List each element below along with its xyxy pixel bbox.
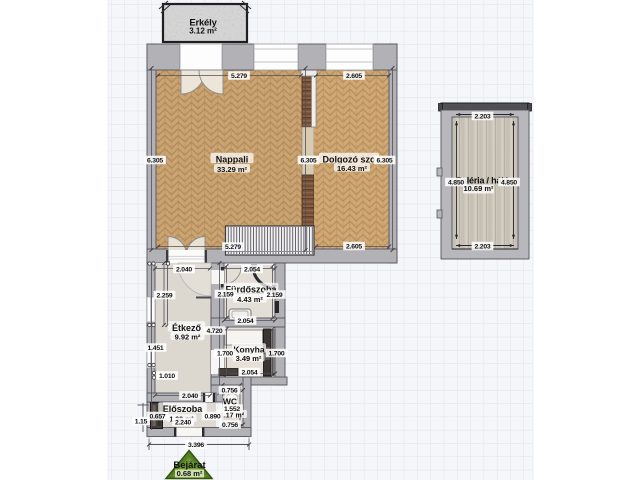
svg-text:Nappali: Nappali [216, 155, 249, 165]
svg-text:6.305: 6.305 [376, 157, 392, 164]
svg-text:4.850: 4.850 [448, 179, 464, 186]
svg-text:2.054: 2.054 [241, 369, 257, 376]
svg-text:1.15: 1.15 [135, 418, 148, 425]
svg-text:6.305: 6.305 [300, 157, 316, 164]
svg-text:1.17 m²: 1.17 m² [220, 412, 245, 419]
svg-text:1.552: 1.552 [224, 406, 240, 413]
svg-text:2.240: 2.240 [175, 419, 191, 426]
svg-text:9.92 m²: 9.92 m² [175, 333, 201, 342]
svg-text:2.203: 2.203 [474, 113, 490, 120]
svg-text:2.605: 2.605 [346, 243, 362, 250]
svg-text:2.259: 2.259 [156, 292, 172, 299]
svg-text:3.49 m²: 3.49 m² [236, 354, 262, 363]
svg-text:Előszoba: Előszoba [163, 404, 204, 414]
svg-text:2.040: 2.040 [176, 266, 192, 273]
svg-text:4.43 m²: 4.43 m² [237, 295, 263, 304]
svg-text:5.279: 5.279 [231, 73, 247, 80]
svg-text:1.010: 1.010 [159, 373, 175, 380]
svg-text:16.43 m²: 16.43 m² [337, 164, 368, 173]
svg-text:2.040: 2.040 [182, 393, 198, 400]
svg-text:1.700: 1.700 [268, 350, 284, 357]
svg-text:0.657: 0.657 [149, 413, 165, 420]
svg-text:2.159: 2.159 [266, 292, 282, 299]
svg-text:4.720: 4.720 [206, 328, 222, 335]
svg-text:0.890: 0.890 [204, 413, 220, 420]
svg-text:3.12 m²: 3.12 m² [189, 27, 217, 36]
svg-text:0.756: 0.756 [221, 387, 237, 394]
svg-text:0.756: 0.756 [222, 422, 238, 429]
svg-text:2.159: 2.159 [217, 291, 233, 298]
svg-text:33.29 m²: 33.29 m² [217, 165, 248, 174]
svg-text:2.605: 2.605 [346, 73, 362, 80]
svg-text:6.305: 6.305 [147, 157, 163, 164]
svg-text:2.054: 2.054 [237, 318, 253, 325]
svg-text:Konyha: Konyha [233, 344, 264, 354]
svg-text:3.396: 3.396 [188, 442, 204, 449]
svg-text:5.279: 5.279 [225, 244, 241, 251]
svg-text:0.68 m²: 0.68 m² [177, 469, 203, 478]
svg-text:2.054: 2.054 [244, 266, 260, 273]
svg-text:4.850: 4.850 [501, 179, 517, 186]
svg-text:1.700: 1.700 [217, 350, 233, 357]
svg-text:2.203: 2.203 [474, 243, 490, 250]
svg-text:1.451: 1.451 [147, 345, 163, 352]
svg-text:10.69 m²: 10.69 m² [463, 184, 494, 193]
